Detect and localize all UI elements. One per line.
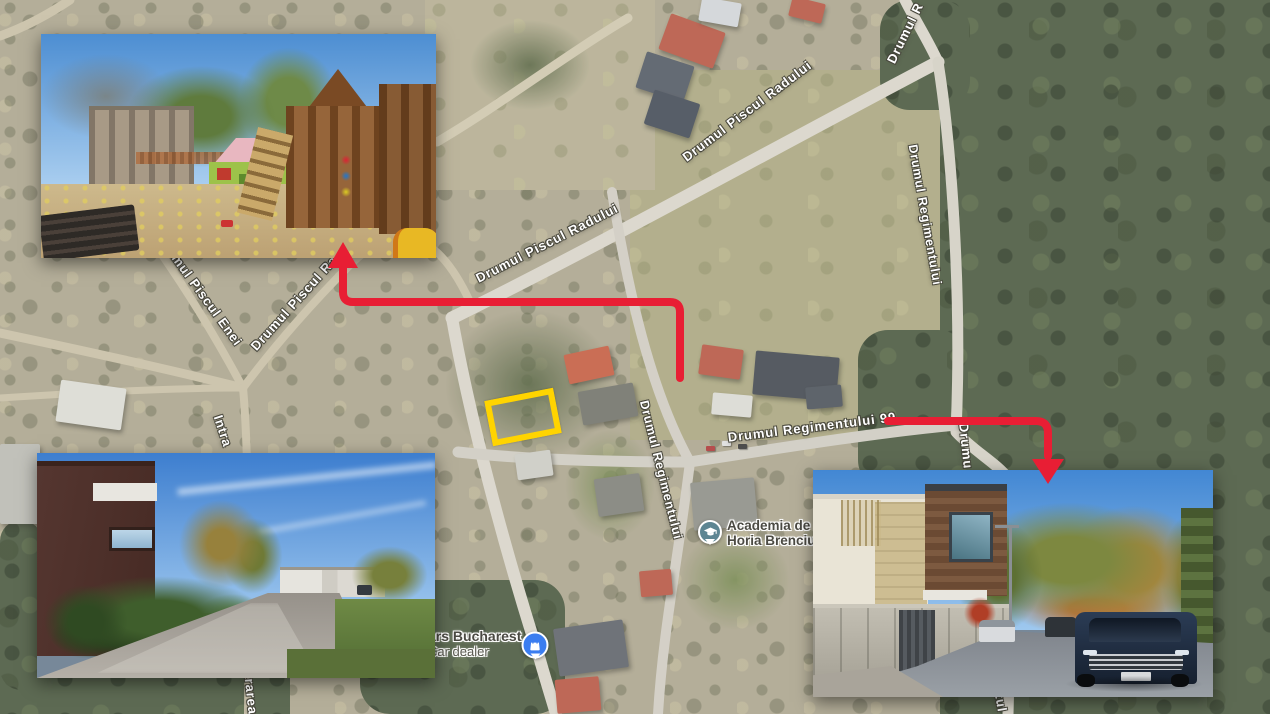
shopping-bag-icon: [528, 638, 543, 653]
house-window: [109, 527, 155, 551]
car-shadows: [973, 638, 1203, 692]
climbing-holds: [341, 154, 351, 200]
wood-castle-tower: [379, 84, 436, 234]
car-dealer-poi-label[interactable]: ars Bucharest Car dealer: [428, 629, 520, 645]
street-photo-right: [813, 470, 1213, 697]
street-photo-left: [37, 453, 435, 678]
car-dealer-poi-pin[interactable]: [522, 632, 549, 659]
toy-red: [221, 220, 233, 227]
playground-photo: [41, 34, 436, 258]
graduation-cap-icon: [703, 525, 718, 540]
mesh-balcony: [841, 500, 881, 546]
apartment-building: [89, 106, 194, 194]
dark-car: [1045, 617, 1077, 637]
yellow-tube-slide: [393, 228, 436, 258]
pin-pointer: [705, 539, 715, 550]
street-lamp-arm: [995, 525, 1019, 528]
car-dealer-category: Car dealer: [428, 645, 489, 660]
playhouse-window-left: [217, 168, 231, 180]
house-window-glass: [949, 512, 993, 562]
pin-pointer: [530, 654, 540, 665]
distant-car: [357, 585, 372, 595]
academia-name-line2: Horia Brenciu: [727, 533, 823, 548]
car-dealer-name-line1: ars Bucharest: [428, 629, 520, 645]
academia-poi-label[interactable]: Academia de A Horia Brenciu: [727, 518, 823, 548]
academia-poi-pin[interactable]: [698, 520, 722, 544]
academia-name-line1: Academia de A: [727, 518, 823, 533]
house-parapet: [93, 483, 157, 501]
map-collage: Drumul Piscul Radului Drumul Piscul Radu…: [0, 0, 1270, 714]
grass-corner-bottom-right: [287, 649, 435, 678]
